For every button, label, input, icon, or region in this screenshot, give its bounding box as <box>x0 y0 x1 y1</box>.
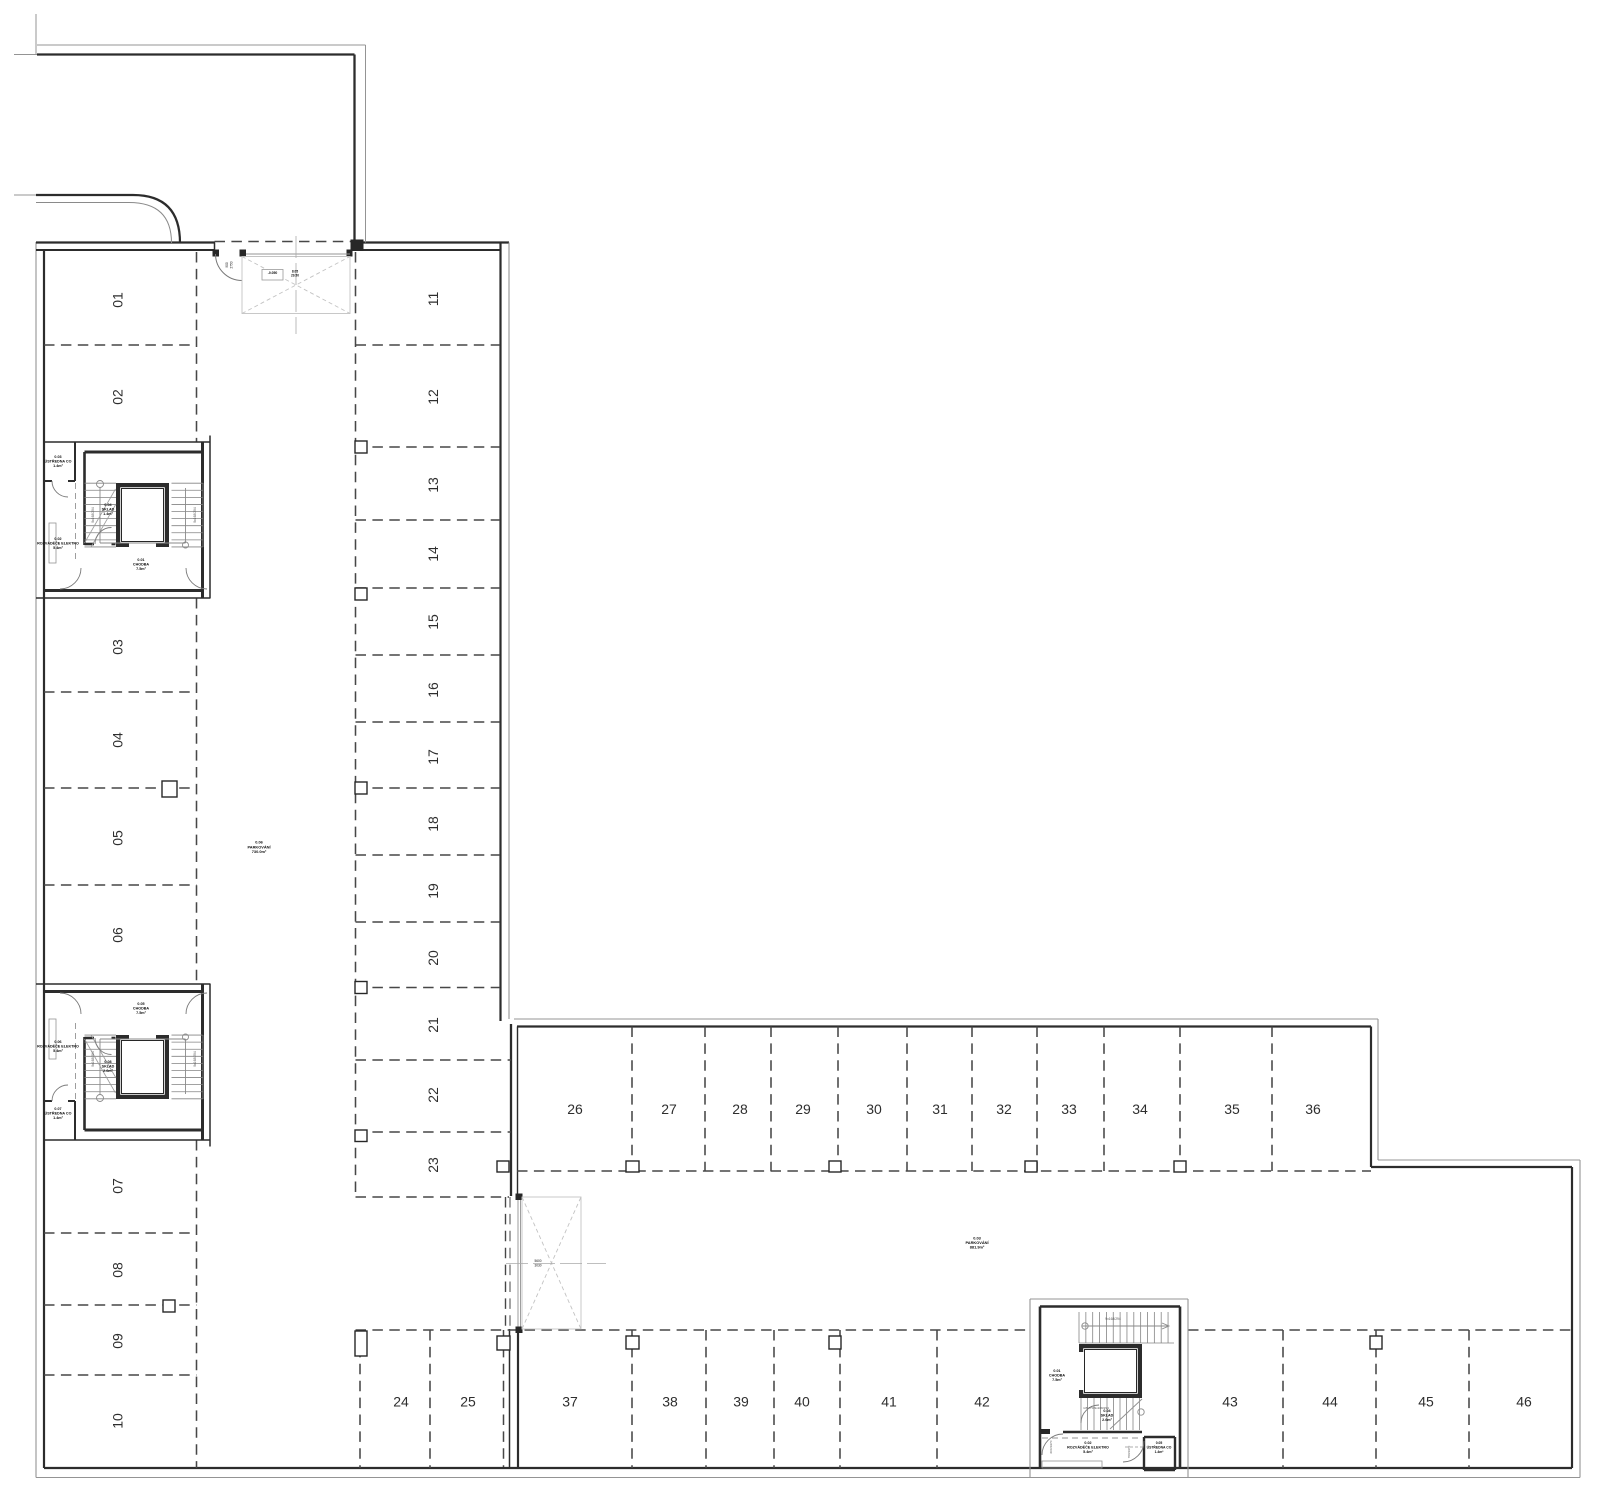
svg-text:20: 20 <box>425 950 441 966</box>
svg-text:15: 15 <box>425 614 441 630</box>
svg-text:ROZVÁDĚČE ELEKTRO: ROZVÁDĚČE ELEKTRO <box>1067 1445 1109 1450</box>
svg-text:24: 24 <box>393 1394 409 1410</box>
svg-text:28: 28 <box>732 1101 748 1117</box>
svg-text:17: 17 <box>425 749 441 765</box>
svg-text:18: 18 <box>425 816 441 832</box>
svg-text:32: 32 <box>996 1101 1012 1117</box>
svg-text:08: 08 <box>110 1262 126 1278</box>
svg-text:21: 21 <box>425 1017 441 1033</box>
svg-text:9x168/294: 9x168/294 <box>193 1051 197 1067</box>
svg-text:9x168/294: 9x168/294 <box>193 507 197 523</box>
svg-text:23: 23 <box>425 1157 441 1173</box>
svg-text:45: 45 <box>1418 1394 1434 1410</box>
svg-text:2.6m²: 2.6m² <box>1102 1418 1112 1422</box>
svg-text:43: 43 <box>1222 1394 1238 1410</box>
svg-text:1.4m²: 1.4m² <box>1155 1450 1165 1454</box>
svg-text:1.4m²: 1.4m² <box>53 464 63 468</box>
svg-text:13: 13 <box>425 477 441 493</box>
svg-text:44: 44 <box>1322 1394 1338 1410</box>
svg-text:0.05: 0.05 <box>1156 1441 1163 1445</box>
svg-text:881.9m²: 881.9m² <box>970 1245 985 1250</box>
svg-text:41: 41 <box>881 1394 897 1410</box>
svg-text:25: 25 <box>460 1394 476 1410</box>
svg-text:19: 19 <box>425 883 441 899</box>
svg-text:-0.050: -0.050 <box>268 271 278 275</box>
svg-text:26: 26 <box>567 1101 583 1117</box>
svg-text:31: 31 <box>932 1101 948 1117</box>
svg-text:33: 33 <box>1061 1101 1077 1117</box>
svg-text:30: 30 <box>866 1101 882 1117</box>
svg-text:09: 09 <box>110 1333 126 1349</box>
svg-text:ÚSTŘEDNA CO: ÚSTŘEDNA CO <box>1147 1444 1172 1449</box>
svg-text:3030: 3030 <box>534 1264 541 1268</box>
svg-text:9x168/294: 9x168/294 <box>1105 1317 1121 1321</box>
svg-text:42: 42 <box>974 1394 990 1410</box>
svg-text:2.6m²: 2.6m² <box>103 1069 113 1073</box>
svg-text:9x168/294: 9x168/294 <box>91 507 95 523</box>
svg-text:0.02: 0.02 <box>54 537 61 541</box>
svg-text:CHODBA: CHODBA <box>1049 1374 1066 1378</box>
svg-text:0.04: 0.04 <box>1103 1409 1111 1413</box>
svg-text:SKLAD: SKLAD <box>102 1065 115 1069</box>
svg-text:SKLAD: SKLAD <box>102 508 115 512</box>
svg-text:ROZVÁDĚČE ELEKTRO: ROZVÁDĚČE ELEKTRO <box>37 541 79 546</box>
svg-text:5600: 5600 <box>534 1259 541 1263</box>
svg-text:35: 35 <box>1224 1101 1240 1117</box>
svg-text:12: 12 <box>425 389 441 405</box>
svg-text:02: 02 <box>110 389 126 405</box>
svg-text:0.07: 0.07 <box>54 1107 61 1111</box>
svg-text:730.0m²: 730.0m² <box>252 849 267 854</box>
svg-text:0.05: 0.05 <box>137 1002 144 1006</box>
svg-text:04: 04 <box>110 732 126 748</box>
svg-text:0.03: 0.03 <box>54 455 61 459</box>
svg-text:29: 29 <box>795 1101 811 1117</box>
svg-text:CHODBA: CHODBA <box>133 1007 150 1011</box>
svg-text:SKLAD: SKLAD <box>1101 1414 1114 1418</box>
svg-text:0.06: 0.06 <box>54 1040 61 1044</box>
svg-text:ÚSTŘEDNA CO: ÚSTŘEDNA CO <box>45 459 72 464</box>
svg-text:600/1970: 600/1970 <box>1049 1440 1053 1453</box>
svg-text:7.5m²: 7.5m² <box>1052 1378 1062 1382</box>
svg-text:01: 01 <box>110 292 126 308</box>
svg-text:38: 38 <box>662 1394 678 1410</box>
svg-text:900: 900 <box>225 262 229 268</box>
svg-text:16: 16 <box>425 682 441 698</box>
svg-text:40: 40 <box>794 1394 810 1410</box>
svg-text:22: 22 <box>425 1087 441 1103</box>
svg-text:46: 46 <box>1516 1394 1532 1410</box>
svg-text:0.04: 0.04 <box>104 503 112 507</box>
svg-text:14: 14 <box>425 546 441 562</box>
svg-text:37: 37 <box>562 1394 578 1410</box>
svg-text:34: 34 <box>1132 1101 1148 1117</box>
svg-text:0.02: 0.02 <box>1084 1441 1091 1445</box>
svg-text:CHODBA: CHODBA <box>133 563 150 567</box>
svg-text:11: 11 <box>425 292 441 307</box>
svg-text:0.01: 0.01 <box>137 558 144 562</box>
svg-text:ÚSTŘEDNA CO: ÚSTŘEDNA CO <box>45 1111 72 1116</box>
svg-text:36: 36 <box>1305 1101 1321 1117</box>
svg-text:27: 27 <box>661 1101 677 1117</box>
svg-text:0.08: 0.08 <box>104 1060 111 1064</box>
svg-text:9x168/294: 9x168/294 <box>91 1051 95 1067</box>
svg-text:5.4m²: 5.4m² <box>53 1049 63 1053</box>
svg-text:1.4m²: 1.4m² <box>103 512 113 516</box>
svg-text:5.4m²: 5.4m² <box>1083 1450 1093 1454</box>
svg-text:07: 07 <box>110 1178 126 1194</box>
svg-text:03: 03 <box>110 639 126 655</box>
svg-text:5.4m²: 5.4m² <box>53 546 63 550</box>
svg-text:05: 05 <box>110 830 126 846</box>
svg-text:10: 10 <box>110 1413 126 1429</box>
svg-text:ROZVÁDĚČE ELEKTRO: ROZVÁDĚČE ELEKTRO <box>37 1044 79 1049</box>
svg-text:700/1970: 700/1970 <box>1127 1445 1131 1458</box>
svg-text:7.5m²: 7.5m² <box>136 567 146 571</box>
svg-text:2750: 2750 <box>230 261 234 268</box>
svg-text:0.01: 0.01 <box>1053 1369 1060 1373</box>
svg-text:1.4m²: 1.4m² <box>53 1116 63 1120</box>
svg-text:7.5m²: 7.5m² <box>136 1011 146 1015</box>
svg-text:29.50: 29.50 <box>291 274 299 278</box>
svg-text:39: 39 <box>733 1394 749 1410</box>
svg-text:06: 06 <box>110 927 126 943</box>
